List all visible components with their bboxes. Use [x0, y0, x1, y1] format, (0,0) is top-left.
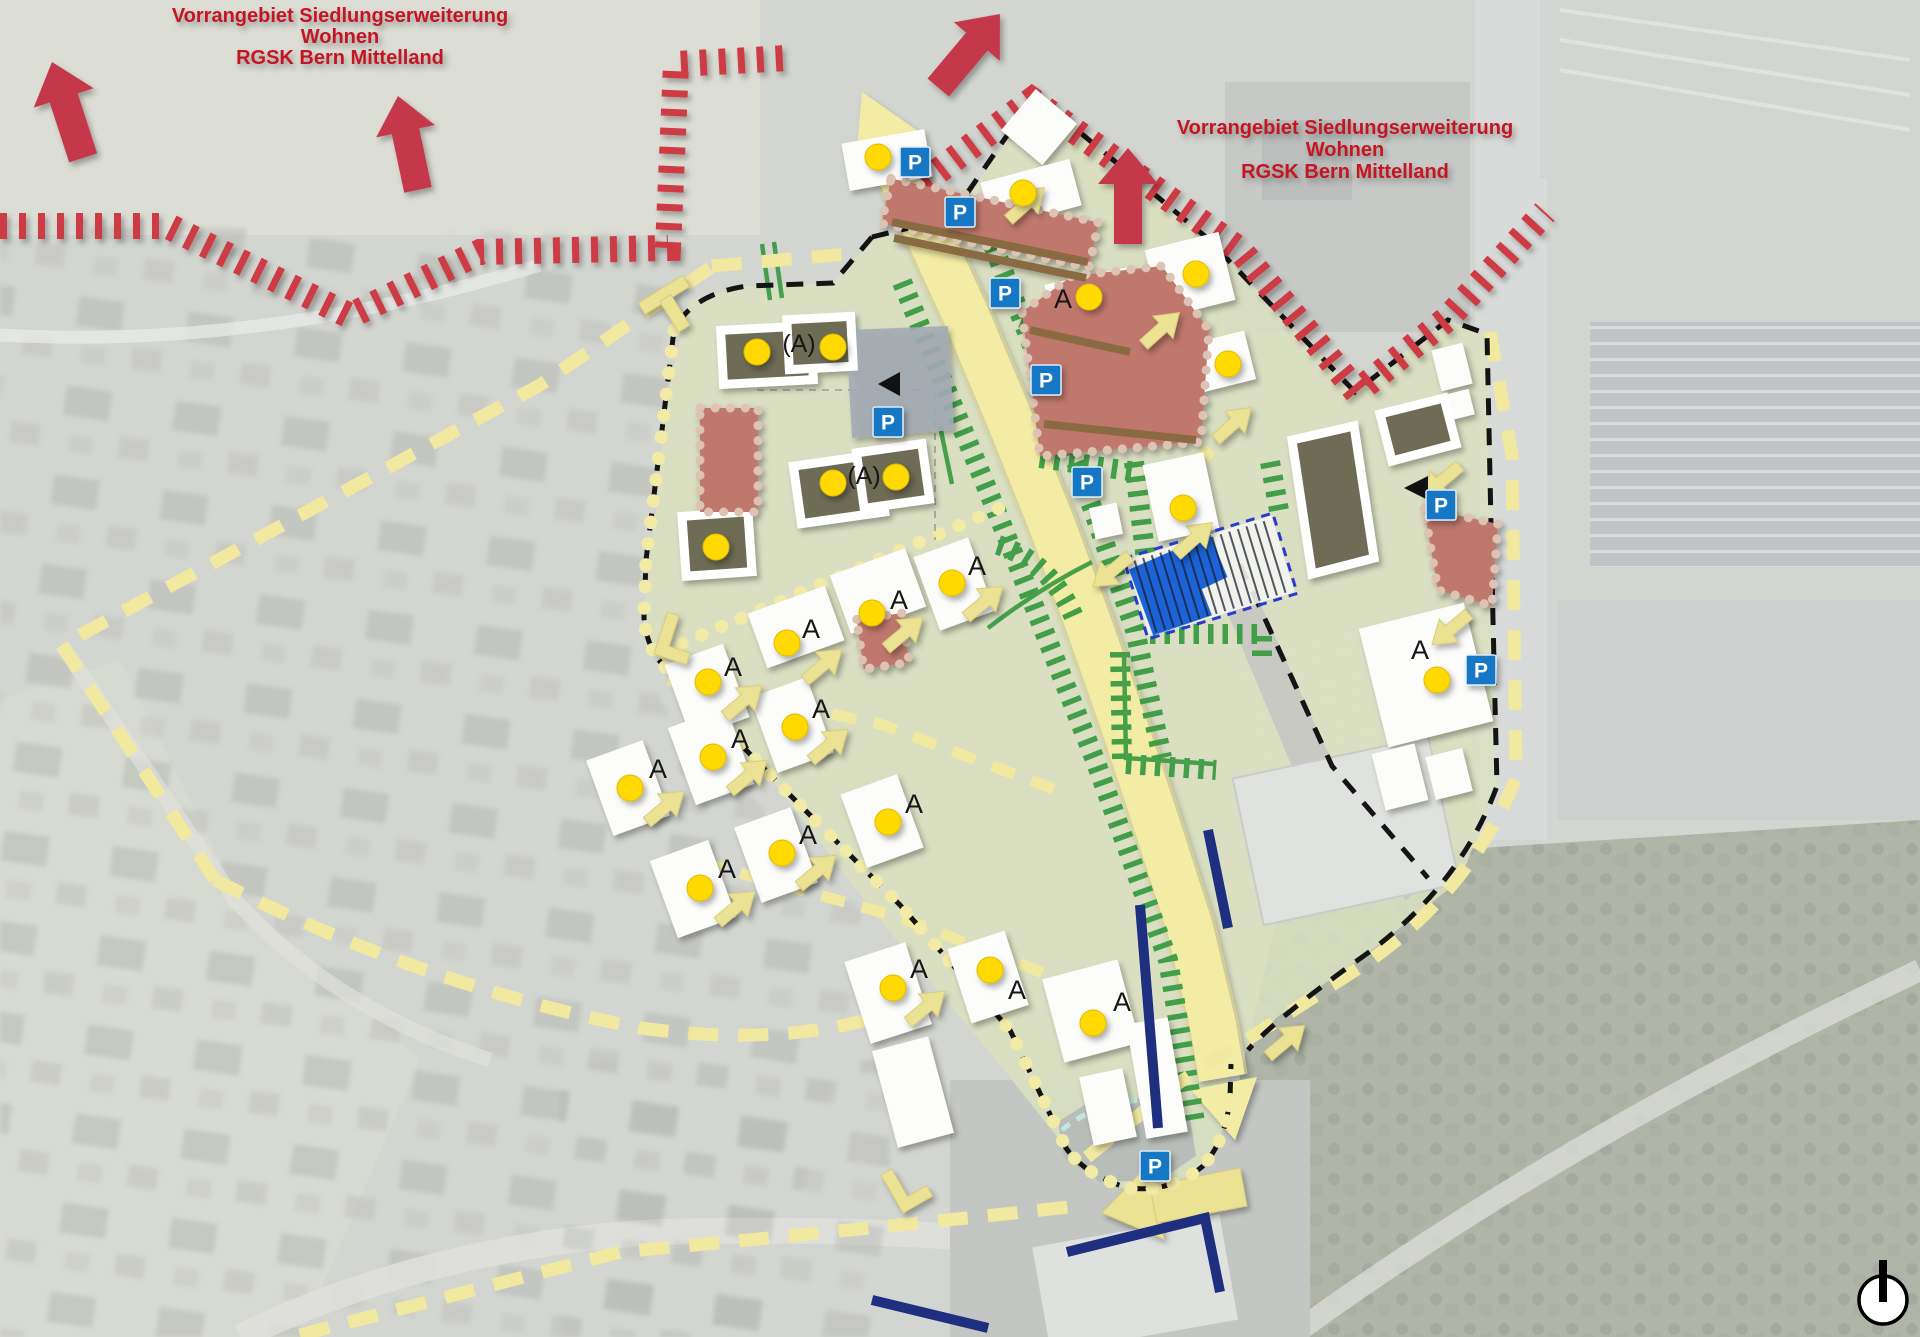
planned-building-olive	[1380, 398, 1456, 461]
parking-sign: P	[900, 147, 930, 177]
unit-a-label: A	[1008, 975, 1026, 1005]
priority-annotation-line: RGSK Bern Mittelland	[236, 47, 444, 69]
entrance-dot	[703, 534, 729, 560]
parking-sign: P	[1031, 365, 1061, 395]
parking-sign: P	[945, 197, 975, 227]
entrance-dot	[1076, 284, 1102, 310]
entrance-dot	[1010, 180, 1036, 206]
priority-annotation-line: Vorrangebiet Siedlungserweiterung	[1177, 117, 1513, 139]
entrance-dot	[700, 744, 726, 770]
entrance-dot	[977, 957, 1003, 983]
site-plan-map: PPPPPPPPP AAAAAAAAAAAAAAA(A)(A) Vorrange…	[0, 0, 1920, 1337]
unit-a-label: A	[799, 820, 817, 850]
entrance-dot	[687, 875, 713, 901]
entrance-dot	[1183, 261, 1209, 287]
parking-sign: P	[1426, 490, 1456, 520]
entrance-dot	[695, 669, 721, 695]
parking-sign: P	[1140, 1151, 1170, 1181]
entrance-dot	[774, 630, 800, 656]
site-plan-page: PPPPPPPPP AAAAAAAAAAAAAAA(A)(A) Vorrange…	[0, 0, 1920, 1337]
parking-sign: P	[1466, 655, 1496, 685]
entrance-dot	[875, 809, 901, 835]
unit-conditional-label: (A)	[847, 462, 880, 490]
unit-a-label: A	[718, 854, 736, 884]
unit-conditional-label: (A)	[782, 330, 815, 358]
parking-sign: P	[1072, 467, 1102, 497]
priority-annotation-line: Wohnen	[301, 26, 380, 48]
entrance-dot	[617, 775, 643, 801]
unit-a-label: A	[802, 614, 820, 644]
unit-a-label: A	[724, 652, 742, 682]
entrance-dot	[782, 714, 808, 740]
entrance-dot	[769, 840, 795, 866]
unit-a-label: A	[649, 754, 667, 784]
unit-a-label: A	[905, 789, 923, 819]
unit-a-label: A	[1411, 635, 1429, 665]
parking-sign-label: P	[881, 412, 895, 435]
unit-a-label: A	[731, 724, 749, 754]
north-needle	[1879, 1260, 1887, 1302]
parking-sign-label: P	[1080, 472, 1094, 495]
unit-a-label: A	[1054, 284, 1072, 314]
priority-annotation-line: Vorrangebiet Siedlungserweiterung	[172, 5, 508, 27]
priority-annotation-line: RGSK Bern Mittelland	[1241, 161, 1449, 183]
planned-building-red	[700, 408, 758, 512]
entrance-dot	[883, 464, 909, 490]
priority-annotation-line: Wohnen	[1306, 139, 1385, 161]
entrance-dot	[865, 144, 891, 170]
parking-sign: P	[873, 407, 903, 437]
parking-sign-label: P	[908, 152, 922, 175]
parking-sign-label: P	[1474, 660, 1488, 683]
entrance-dot	[744, 339, 770, 365]
parking-sign: P	[990, 278, 1020, 308]
entrance-dot	[939, 570, 965, 596]
entrance-dot	[820, 334, 846, 360]
unit-a-label: A	[812, 694, 830, 724]
parking-sign-label: P	[953, 202, 967, 225]
unit-a-label: A	[910, 954, 928, 984]
unit-a-label: A	[890, 585, 908, 615]
entrance-dot	[820, 470, 846, 496]
unit-a-label: A	[968, 551, 986, 581]
parking-sign-label: P	[1434, 495, 1448, 518]
entrance-dot	[880, 975, 906, 1001]
parking-sign-label: P	[1039, 370, 1053, 393]
parking-sign-label: P	[998, 283, 1012, 306]
entrance-dot	[1080, 1010, 1106, 1036]
entrance-dot	[1424, 667, 1450, 693]
entrance-dot	[1215, 351, 1241, 377]
entrance-dot	[1170, 495, 1196, 521]
planned-building-olive	[1292, 426, 1374, 574]
entrance-dot	[859, 600, 885, 626]
parking-sign-label: P	[1148, 1156, 1162, 1179]
unit-a-label: A	[1113, 987, 1131, 1017]
